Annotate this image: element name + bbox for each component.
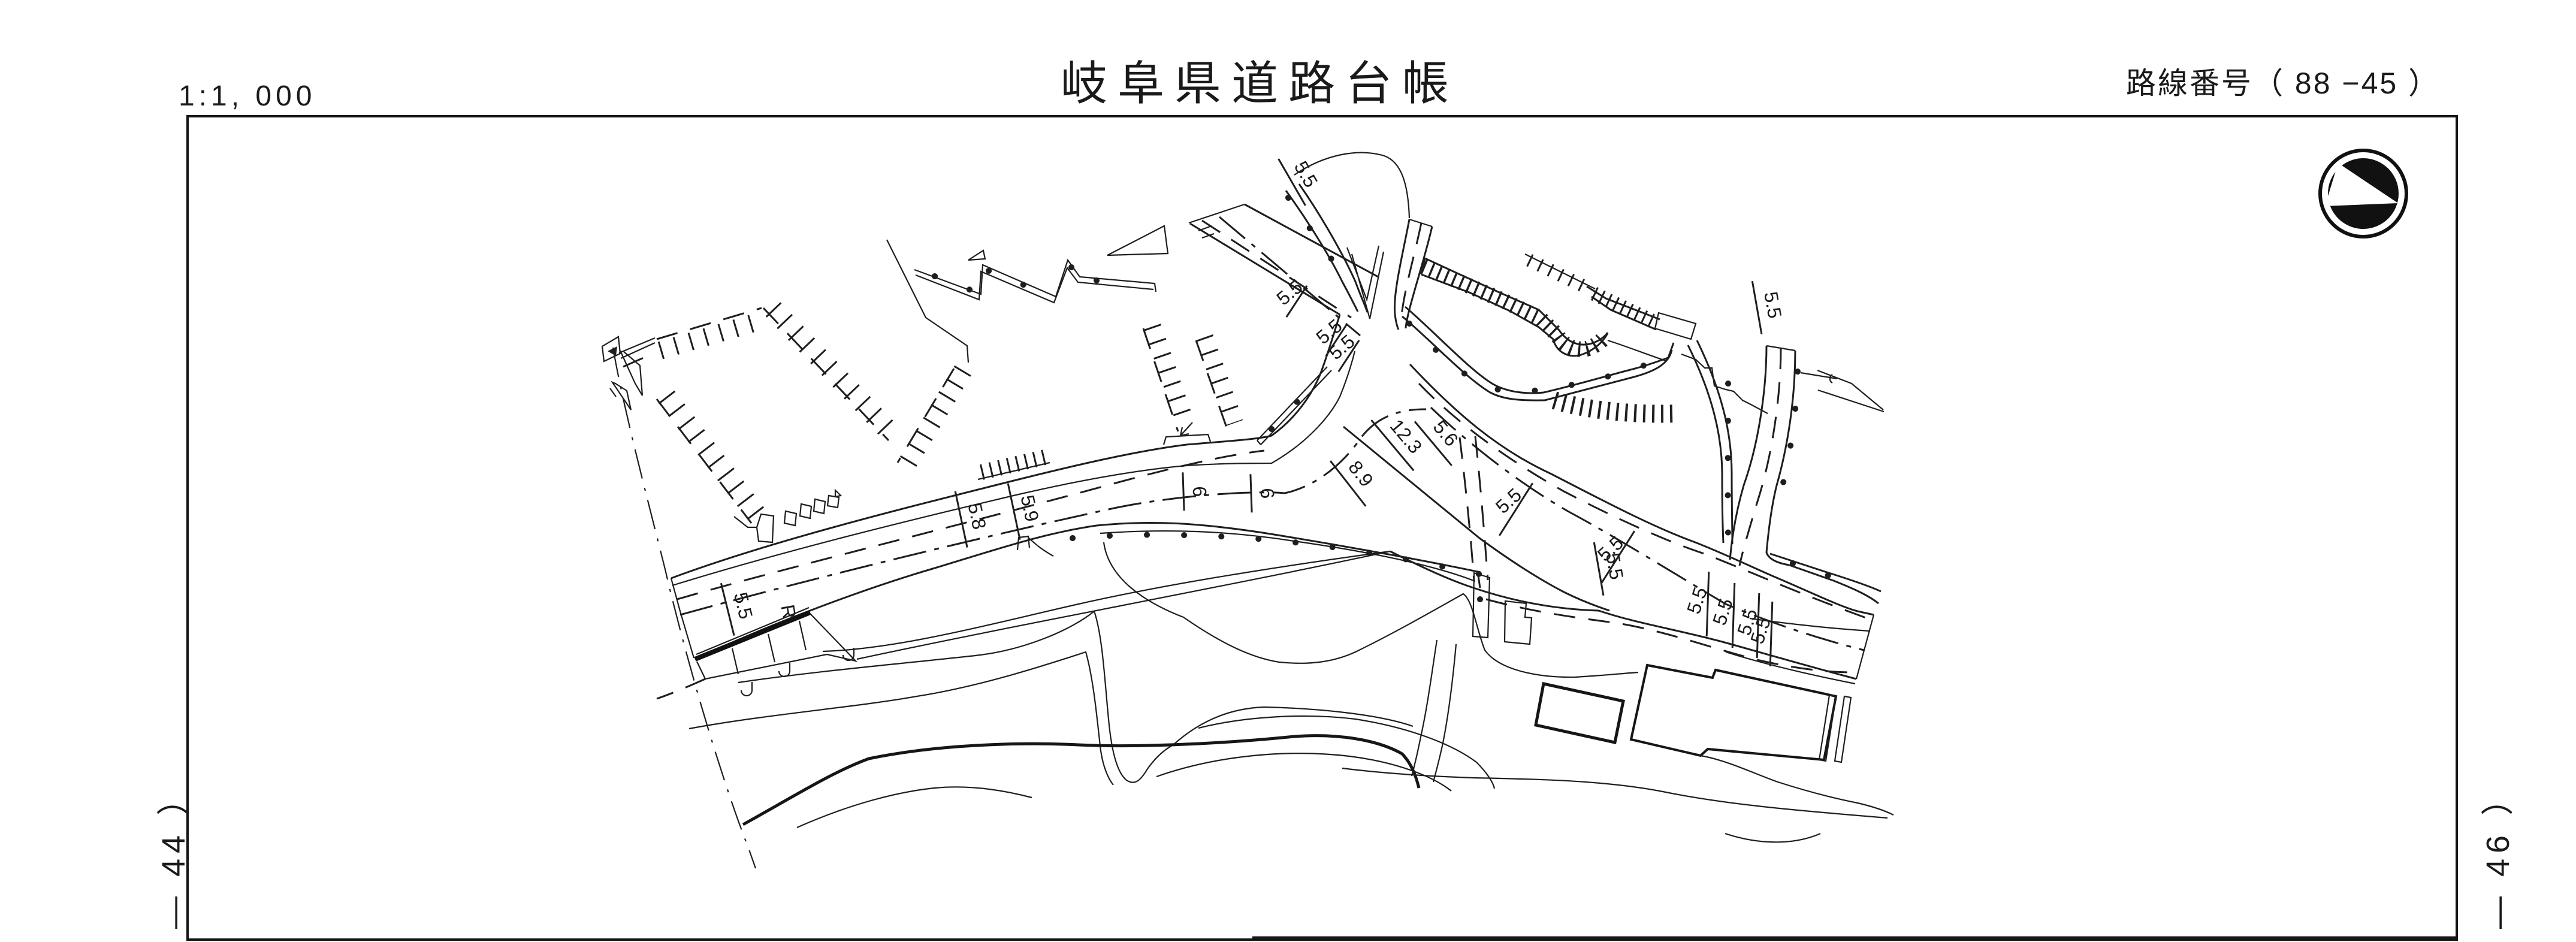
svg-text:12.3: 12.3 [1386, 415, 1427, 458]
svg-text:5.5: 5.5 [1602, 551, 1627, 581]
svg-text:6: 6 [1257, 488, 1279, 499]
svg-text:1:1, 000: 1:1, 000 [179, 80, 316, 112]
svg-text:5.9: 5.9 [1016, 493, 1043, 524]
svg-text:— 44 ）: — 44 ） [156, 778, 192, 929]
svg-text:5.8: 5.8 [964, 501, 990, 532]
svg-text:— 46 ）: — 46 ） [2480, 778, 2516, 929]
svg-text:5.5: 5.5 [1760, 290, 1786, 320]
svg-text:6: 6 [1189, 486, 1211, 497]
svg-text:岐阜県道路台帳: 岐阜県道路台帳 [1061, 57, 1459, 110]
svg-text:路線番号（ 88 −45 ）: 路線番号（ 88 −45 ） [2126, 67, 2440, 100]
